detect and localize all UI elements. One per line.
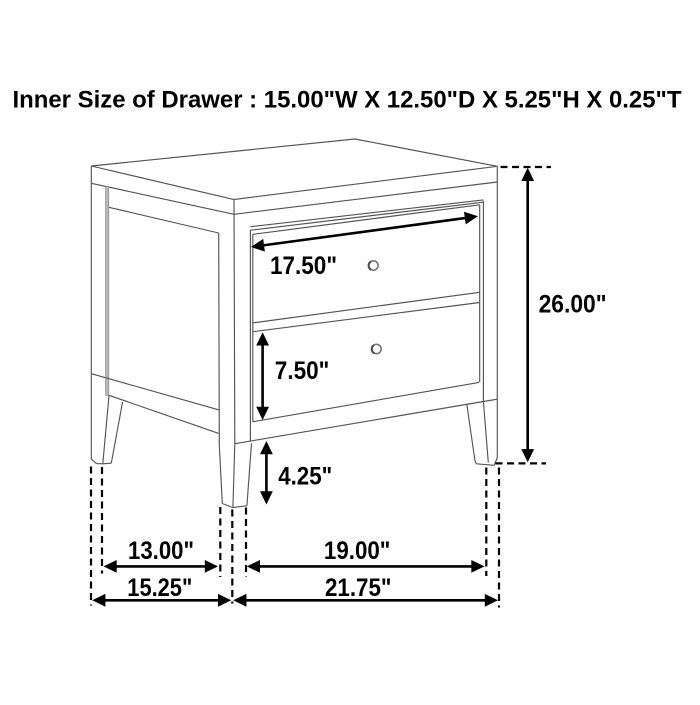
svg-text:21.75": 21.75": [325, 574, 392, 602]
svg-text:17.50": 17.50": [270, 252, 337, 280]
svg-text:13.00": 13.00": [128, 537, 194, 565]
svg-text:Inner Size of Drawer : 15.00"W: Inner Size of Drawer : 15.00"W X 12.50"D…: [13, 87, 682, 114]
svg-text:15.25": 15.25": [127, 574, 192, 602]
svg-text:19.00": 19.00": [324, 537, 391, 565]
svg-text:26.00": 26.00": [539, 291, 607, 319]
svg-text:4.25": 4.25": [278, 462, 332, 490]
svg-text:7.50": 7.50": [275, 357, 330, 385]
